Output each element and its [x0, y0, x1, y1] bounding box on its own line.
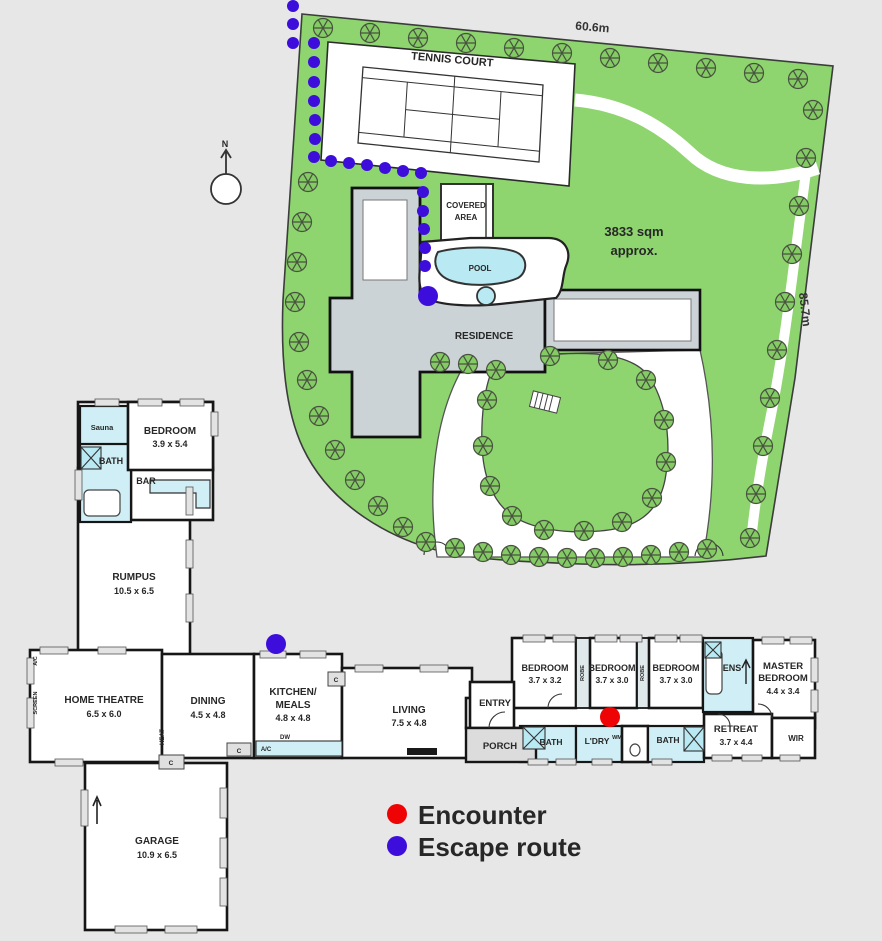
window — [790, 637, 812, 644]
rumpus-label: RUMPUS — [112, 572, 156, 583]
covered-area-label1: COVERED — [446, 201, 486, 210]
bedroom2-dims: 3.7 x 3.0 — [595, 675, 628, 685]
room-home-theatre — [30, 650, 162, 762]
room-bedroom1 — [512, 638, 576, 708]
bedroom2-label: BEDROOM — [589, 663, 636, 673]
escape-route-dot — [417, 186, 429, 198]
bar-label: BAR — [136, 476, 156, 486]
tree-icon — [474, 543, 493, 562]
tree-icon — [474, 437, 493, 456]
porch-label: PORCH — [483, 741, 517, 752]
tree-icon — [804, 101, 823, 120]
window — [528, 759, 548, 765]
window — [523, 635, 545, 642]
ac2-label: A/C — [33, 656, 39, 666]
bedroom3-dims: 3.7 x 3.0 — [659, 675, 692, 685]
tree-icon — [299, 173, 318, 192]
window — [211, 412, 218, 436]
tree-icon — [541, 347, 560, 366]
site-and-floorplan-canvas: N 60.6m 85.7m TENNIS COURT 3833 sqm appr… — [0, 0, 882, 941]
tree-icon — [346, 471, 365, 490]
tree-icon — [649, 54, 668, 73]
tree-icon — [505, 39, 524, 58]
closet-dining-label: C — [237, 748, 242, 755]
room-bedroom3 — [649, 638, 703, 708]
tree-icon — [790, 197, 809, 216]
ldry-label: L'DRY — [585, 736, 610, 746]
room-bedroom2 — [590, 638, 637, 708]
tree-icon — [310, 407, 329, 426]
tree-icon — [457, 34, 476, 53]
tree-icon — [361, 24, 380, 43]
escape-route-dot — [325, 155, 337, 167]
escape-route-dot — [418, 286, 438, 306]
tree-icon — [502, 546, 521, 565]
escape-route-dot — [308, 95, 320, 107]
tree-icon — [394, 518, 413, 537]
escape-route-dot — [309, 133, 321, 145]
tree-icon — [417, 533, 436, 552]
window — [620, 635, 642, 642]
bath2-label: BATH — [657, 735, 680, 745]
window — [712, 755, 732, 761]
tree-icon — [286, 293, 305, 312]
escape-route-dot — [308, 151, 320, 163]
bath1-label: BATH — [540, 737, 563, 747]
tree-icon — [698, 540, 717, 559]
legend: Encounter Escape route — [387, 800, 581, 862]
floorplan-screenshot: N 60.6m 85.7m TENNIS COURT 3833 sqm appr… — [0, 0, 882, 941]
escape-route-dot — [308, 37, 320, 49]
tree-icon — [487, 361, 506, 380]
tree-icon — [643, 489, 662, 508]
tree-icon — [697, 59, 716, 78]
tree-icon — [535, 521, 554, 540]
bathtub-tl — [84, 490, 120, 516]
escape-route-dot — [361, 159, 373, 171]
window — [811, 658, 818, 682]
window — [40, 647, 68, 654]
entry-label: ENTRY — [479, 698, 512, 709]
tree-icon — [409, 29, 428, 48]
tree-icon — [657, 453, 676, 472]
window — [592, 759, 612, 765]
covered-area-label2: AREA — [455, 213, 478, 222]
window — [55, 759, 83, 766]
tree-icon — [431, 353, 450, 372]
window — [652, 759, 672, 765]
bedroom1-label: BEDROOM — [522, 663, 569, 673]
tree-icon — [747, 485, 766, 504]
bath-tl-label: BATH — [99, 456, 123, 466]
home-theatre-label: HOME THEATRE — [64, 695, 144, 706]
dw-label: DW — [280, 735, 290, 741]
retreat-label: RETREAT — [714, 724, 758, 735]
living-label: LIVING — [392, 705, 426, 716]
bedroom1-dims: 3.7 x 3.2 — [528, 675, 561, 685]
north-arrow: N — [211, 139, 241, 204]
tree-icon — [761, 389, 780, 408]
escape-route-dot — [419, 242, 431, 254]
window — [595, 635, 617, 642]
tree-icon — [768, 341, 787, 360]
tree-icon — [288, 253, 307, 272]
tree-icon — [754, 437, 773, 456]
escape-route-dot — [343, 157, 355, 169]
dining-dims: 4.5 x 4.8 — [190, 710, 225, 720]
escape-route-dot — [287, 18, 299, 30]
tree-icon — [642, 546, 661, 565]
tree-icon — [503, 507, 522, 526]
window — [420, 665, 448, 672]
escape-route-dot — [417, 205, 429, 217]
escape-route-dot — [397, 165, 409, 177]
spa — [477, 287, 495, 305]
escape-route-dot — [287, 0, 299, 12]
window — [220, 788, 227, 818]
tree-icon — [575, 522, 594, 541]
window — [300, 651, 326, 658]
bedroom3-label: BEDROOM — [653, 663, 700, 673]
sauna-label: Sauna — [91, 423, 114, 432]
kitchen-label1: KITCHEN/ — [269, 687, 316, 698]
tree-icon — [601, 49, 620, 68]
tree-icon — [670, 543, 689, 562]
kitchen-label2: MEALS — [276, 700, 311, 711]
window — [138, 399, 162, 406]
tree-icon — [553, 44, 572, 63]
window — [115, 926, 147, 933]
window — [553, 635, 575, 642]
window — [355, 665, 383, 672]
hearth — [407, 748, 437, 755]
escape-legend-label: Escape route — [418, 832, 581, 862]
tree-icon — [530, 548, 549, 567]
kitchen-dims: 4.8 x 4.8 — [275, 713, 310, 723]
residence-east-wing — [545, 290, 700, 350]
encounter-legend-dot — [387, 804, 407, 824]
garage-label: GARAGE — [135, 836, 179, 847]
tree-icon — [741, 529, 760, 548]
tree-icon — [613, 513, 632, 532]
tree-icon — [599, 351, 618, 370]
window — [180, 399, 204, 406]
escape-route-dot — [415, 167, 427, 179]
master-label1: MASTER — [763, 661, 803, 672]
ens-label: ENS — [723, 663, 742, 673]
tree-icon — [637, 371, 656, 390]
encounter-legend-label: Encounter — [418, 800, 547, 830]
dimension-top: 60.6m — [575, 19, 610, 36]
tree-icon — [298, 371, 317, 390]
toilet-icon — [630, 744, 640, 756]
tree-icon — [558, 549, 577, 568]
window — [811, 690, 818, 712]
window — [75, 470, 82, 500]
tree-icon — [783, 245, 802, 264]
master-dims: 4.4 x 3.4 — [766, 686, 799, 696]
window — [186, 540, 193, 568]
site-plan: N 60.6m 85.7m TENNIS COURT 3833 sqm appr… — [211, 14, 833, 568]
window — [556, 759, 576, 765]
escape-route-dot — [266, 634, 286, 654]
room-retreat — [704, 714, 772, 758]
escape-route-dot — [308, 76, 320, 88]
escape-route-dot — [287, 37, 299, 49]
robe1-label: ROBE — [580, 665, 586, 681]
window — [186, 594, 193, 622]
screen-label: SCREEN — [33, 692, 39, 715]
rumpus-dims: 10.5 x 6.5 — [114, 586, 154, 596]
retreat-dims: 3.7 x 4.4 — [719, 737, 752, 747]
tree-icon — [614, 548, 633, 567]
heat-label: HEAT — [160, 729, 166, 745]
escape-route-dot — [379, 162, 391, 174]
window — [655, 635, 677, 642]
bedroom-tl-label: BEDROOM — [144, 426, 196, 437]
north-label: N — [222, 139, 229, 149]
escape-route-dot — [419, 260, 431, 272]
tree-icon — [586, 549, 605, 568]
bedroom-tl-dims: 3.9 x 5.4 — [152, 439, 187, 449]
escape-route-dot — [308, 56, 320, 68]
tree-icon — [326, 441, 345, 460]
wm-label: WM — [612, 735, 622, 741]
robe2-label: ROBE — [640, 665, 646, 681]
tree-icon — [789, 70, 808, 89]
site-area-line1: 3833 sqm — [604, 224, 663, 239]
encounter-dot — [600, 707, 620, 727]
tree-icon — [776, 293, 795, 312]
garage-dims: 10.9 x 6.5 — [137, 850, 177, 860]
residence-courtyard — [363, 200, 407, 280]
tree-icon — [481, 477, 500, 496]
window — [742, 755, 762, 761]
window — [780, 755, 800, 761]
window — [220, 838, 227, 868]
tree-icon — [293, 213, 312, 232]
window — [680, 635, 702, 642]
window — [81, 790, 88, 826]
tree-icon — [478, 391, 497, 410]
closet-kitchen-label: C — [334, 677, 339, 684]
tree-icon — [797, 149, 816, 168]
escape-route-dot — [418, 223, 430, 235]
tree-icon — [314, 19, 333, 38]
home-theatre-dims: 6.5 x 6.0 — [86, 709, 121, 719]
residence-label: RESIDENCE — [455, 331, 514, 342]
window — [98, 647, 126, 654]
window — [165, 926, 197, 933]
master-label2: BEDROOM — [758, 673, 808, 684]
pool-label: POOL — [469, 264, 492, 273]
tree-icon — [369, 497, 388, 516]
ac-label: A/C — [261, 747, 272, 753]
living-dims: 7.5 x 4.8 — [391, 718, 426, 728]
dining-label: DINING — [191, 696, 226, 707]
wir-label: WIR — [788, 734, 804, 743]
window — [762, 637, 784, 644]
tree-icon — [446, 539, 465, 558]
escape-route-dot — [309, 114, 321, 126]
tree-icon — [290, 333, 309, 352]
closet-garage-label: C — [169, 760, 174, 767]
escape-legend-dot — [387, 836, 407, 856]
tree-icon — [655, 411, 674, 430]
window — [220, 878, 227, 906]
tree-icon — [745, 64, 764, 83]
window — [95, 399, 119, 406]
site-area-line2: approx. — [611, 243, 658, 258]
window — [186, 487, 193, 515]
tree-icon — [459, 355, 478, 374]
